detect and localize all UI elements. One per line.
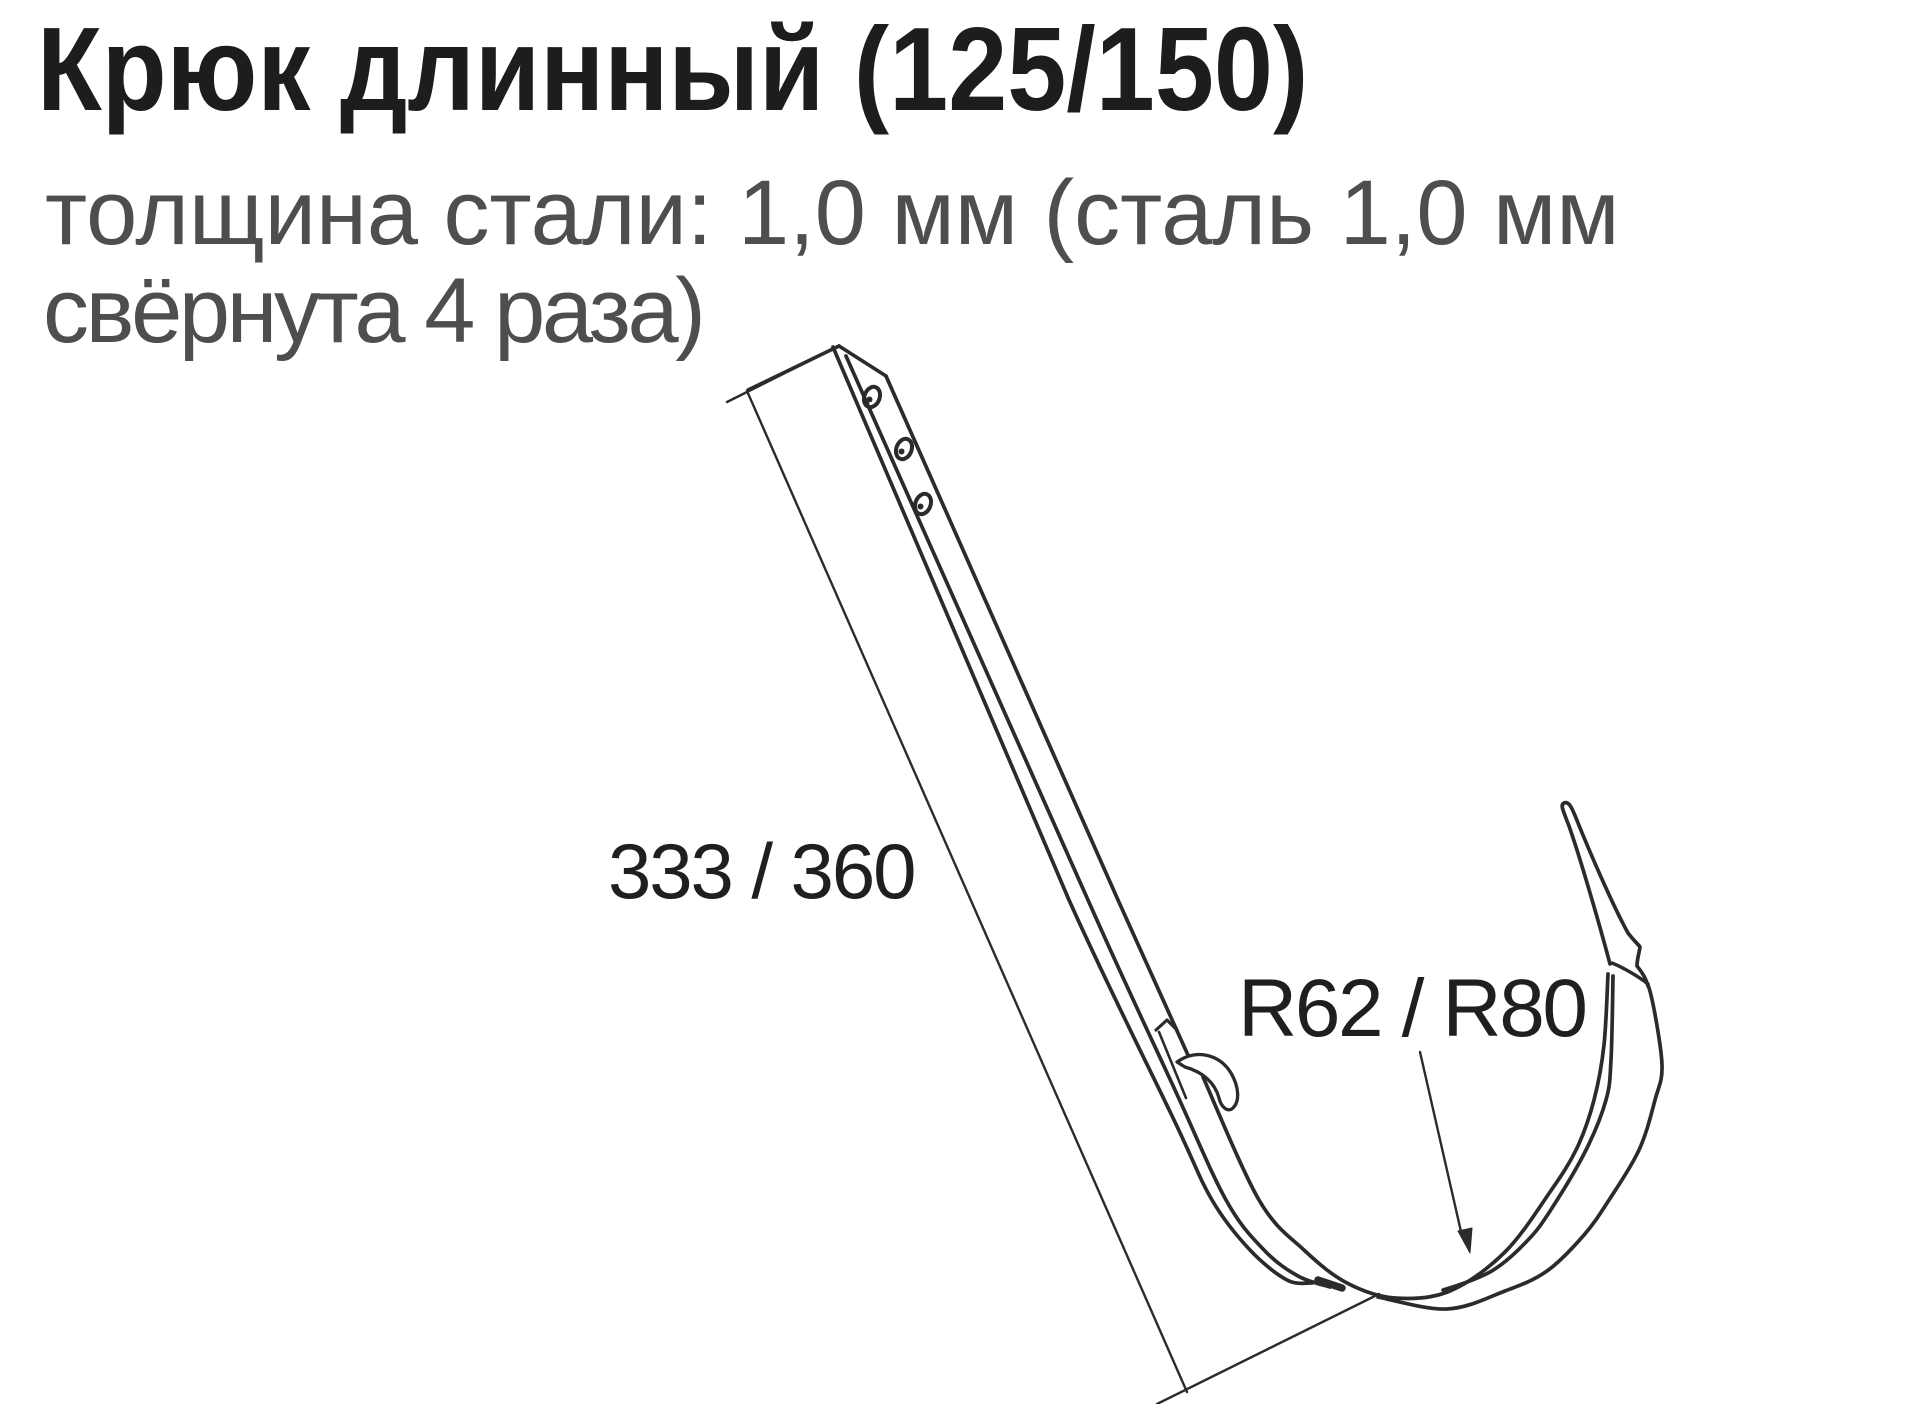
svg-text:333 / 360: 333 / 360: [608, 827, 914, 915]
svg-text:R62 / R80: R62 / R80: [1238, 963, 1586, 1054]
